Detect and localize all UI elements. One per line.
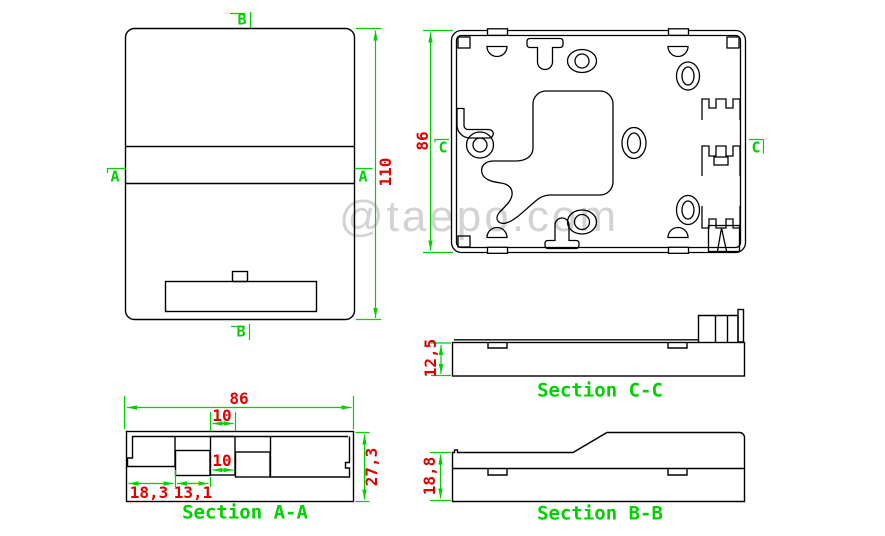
half-moon-bump: [668, 228, 688, 238]
section-aa-label: Section A-A: [182, 504, 308, 523]
keyhole-slot-top: [527, 39, 563, 70]
corner-boss: [727, 37, 739, 48]
dim-aa-slot-bottom: 10: [212, 453, 231, 469]
section-marker-c-left: C: [438, 141, 447, 156]
bb-notch: [668, 469, 687, 476]
bb-notch: [488, 469, 507, 476]
screw-hole: [467, 132, 494, 158]
section-marker-a-right: A: [358, 170, 367, 185]
section-marker-b-top: B: [237, 13, 246, 28]
section-marker-c-right: C: [751, 141, 760, 156]
dim-aa-width: 86: [229, 391, 248, 407]
connector-castellation-bottom: [702, 206, 740, 228]
aa-left-pocket: [128, 437, 176, 467]
aa-right-pocket: [271, 437, 350, 478]
front-label-plate: [166, 282, 317, 312]
half-moon-bump: [487, 47, 507, 57]
screw-hole: [622, 128, 646, 159]
cc-notch: [488, 343, 507, 349]
front-outline: [126, 29, 355, 320]
cad-drawing-canvas: @taepo.com: [0, 0, 885, 536]
rim-notch: [669, 29, 689, 36]
cc-connector-tab: [738, 310, 744, 343]
dim-cc-height: 12,5: [423, 339, 439, 378]
drawing-svg: [0, 0, 885, 536]
dim-aa-slot-top: 10: [212, 408, 231, 424]
screw-hole: [568, 50, 597, 73]
dim-aa-left-pocket: 18,3: [130, 485, 169, 501]
screw-hole-inner: [575, 54, 589, 68]
section-bb-drawing: [453, 433, 745, 502]
front-view-dimensions: [108, 12, 382, 340]
screw-hole-inner: [682, 67, 694, 85]
half-moon-bump: [668, 47, 688, 57]
section-marker-a-left: A: [110, 170, 119, 185]
section-cc-label: Section C-C: [537, 382, 663, 401]
screw-hole: [677, 62, 700, 90]
dim-front-height: 110: [378, 158, 394, 187]
connector-castellation-top: [702, 99, 740, 120]
internal-view-drawing: [452, 29, 746, 254]
front-plate-tab: [233, 272, 248, 282]
screw-hole: [568, 210, 597, 234]
internal-inner-wall: [457, 36, 741, 248]
screw-hole-inner: [575, 215, 590, 230]
cc-connector-block: [699, 316, 739, 343]
dim-aa-height: 27,3: [364, 448, 380, 487]
aa-mid-left-pocket: [176, 451, 211, 476]
bb-outline: [453, 433, 745, 502]
corner-boss: [458, 37, 470, 48]
section-marker-b-bottom: B: [236, 325, 245, 340]
rim-notch: [488, 29, 508, 36]
screw-hole-inner: [628, 133, 641, 153]
screw-hole-inner: [473, 138, 487, 152]
dim-bb-height: 18,8: [422, 457, 438, 496]
rim-notch: [669, 247, 689, 253]
front-view-drawing: [126, 29, 355, 320]
section-bb-label: Section B-B: [537, 505, 663, 524]
section-cc-drawing: [453, 310, 745, 377]
half-moon-bump: [487, 228, 507, 238]
aa-mid-right-pocket: [236, 452, 271, 477]
rim-notch: [488, 247, 508, 253]
cable-bracket: [457, 109, 493, 139]
screw-hole: [677, 196, 700, 225]
connector-castellation-mid: [702, 146, 740, 176]
central-cutout: [482, 91, 613, 223]
screw-hole-inner: [682, 201, 694, 219]
dim-internal-height: 86: [415, 131, 431, 150]
connector-bridge: [714, 157, 728, 165]
dim-aa-mid-pocket: 13,1: [174, 485, 213, 501]
corner-boss: [458, 236, 470, 247]
cc-notch: [668, 343, 687, 349]
